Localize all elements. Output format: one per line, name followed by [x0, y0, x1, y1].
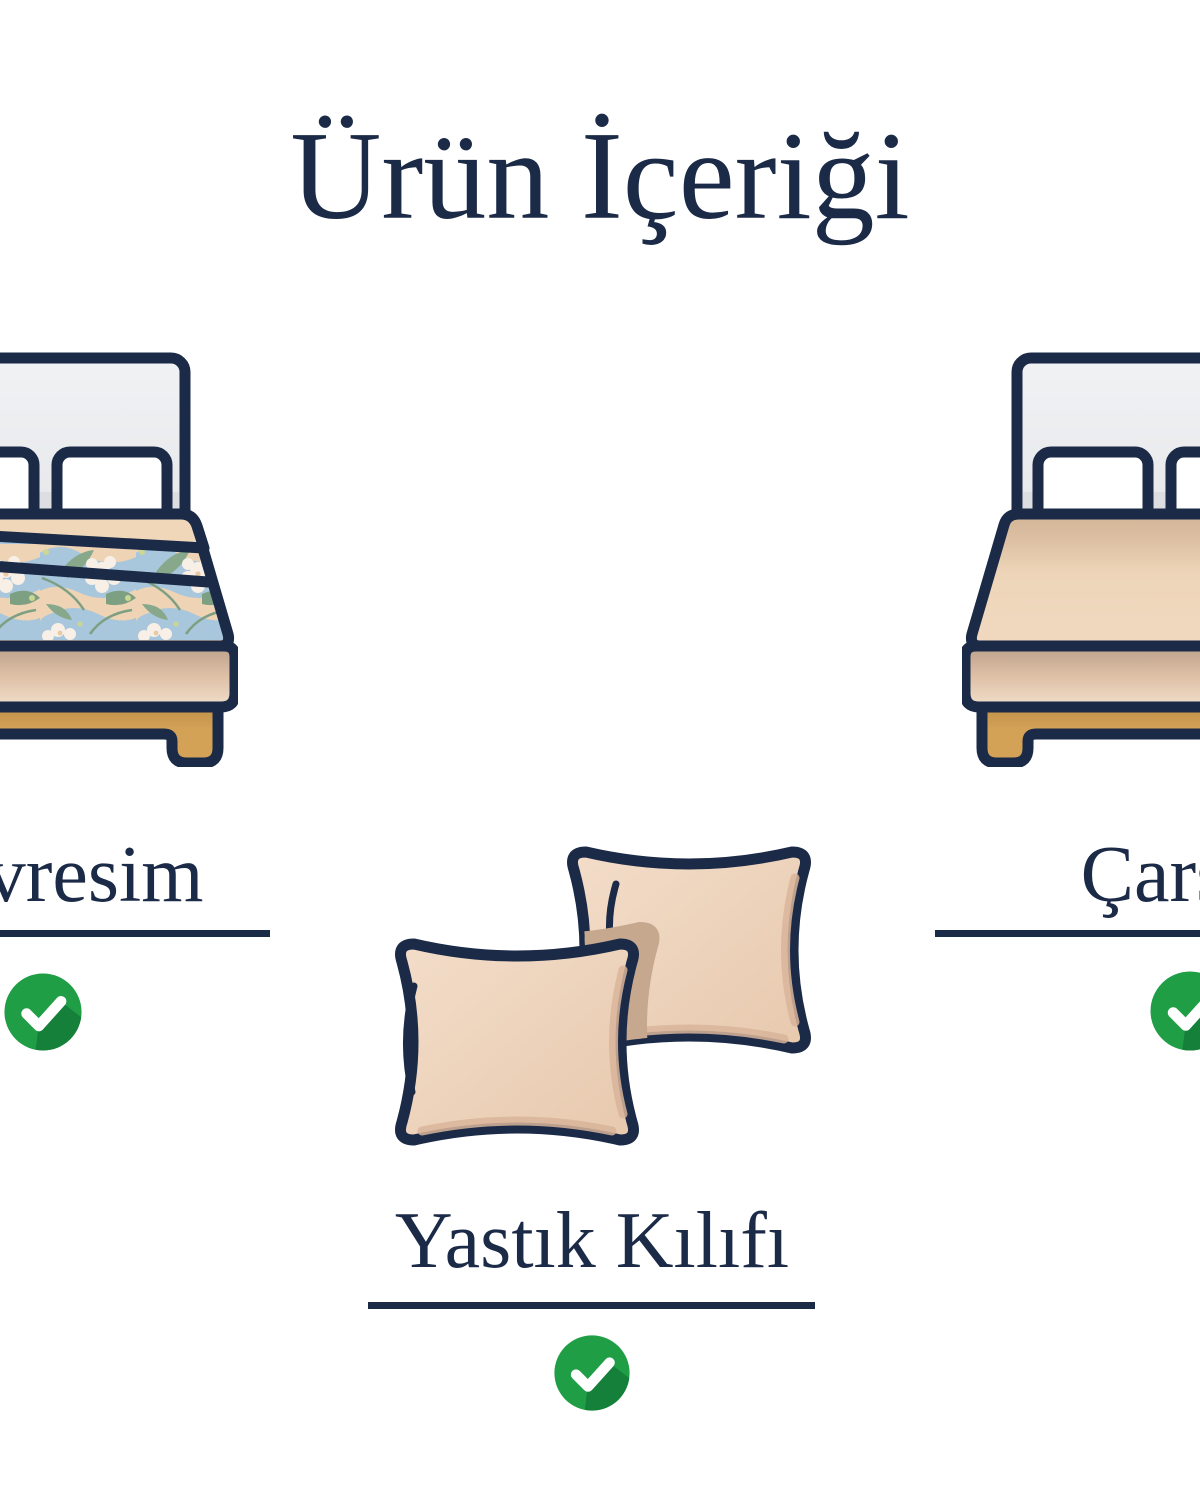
bed-with-sheet-icon — [962, 352, 1200, 767]
item-label-nevresim: Nevresim — [0, 835, 298, 915]
page-title: Ürün İçeriği — [0, 114, 1200, 240]
label-underline-nevresim — [0, 930, 270, 937]
product-content-infographic: Ürün İçeriği — [0, 0, 1200, 1500]
label-underline-yastik-kilifi — [368, 1302, 815, 1309]
check-icon-yastik-kilifi — [552, 1333, 632, 1413]
check-icon-carsaf — [1148, 969, 1200, 1053]
label-underline-carsaf — [935, 930, 1200, 937]
item-label-carsaf: Çarşaf — [935, 835, 1200, 915]
bed-with-duvet-icon — [0, 352, 238, 767]
item-label-yastik-kilifi: Yastık Kılıfı — [342, 1201, 842, 1281]
check-icon-nevresim — [2, 971, 84, 1053]
pillows-icon — [362, 828, 837, 1163]
